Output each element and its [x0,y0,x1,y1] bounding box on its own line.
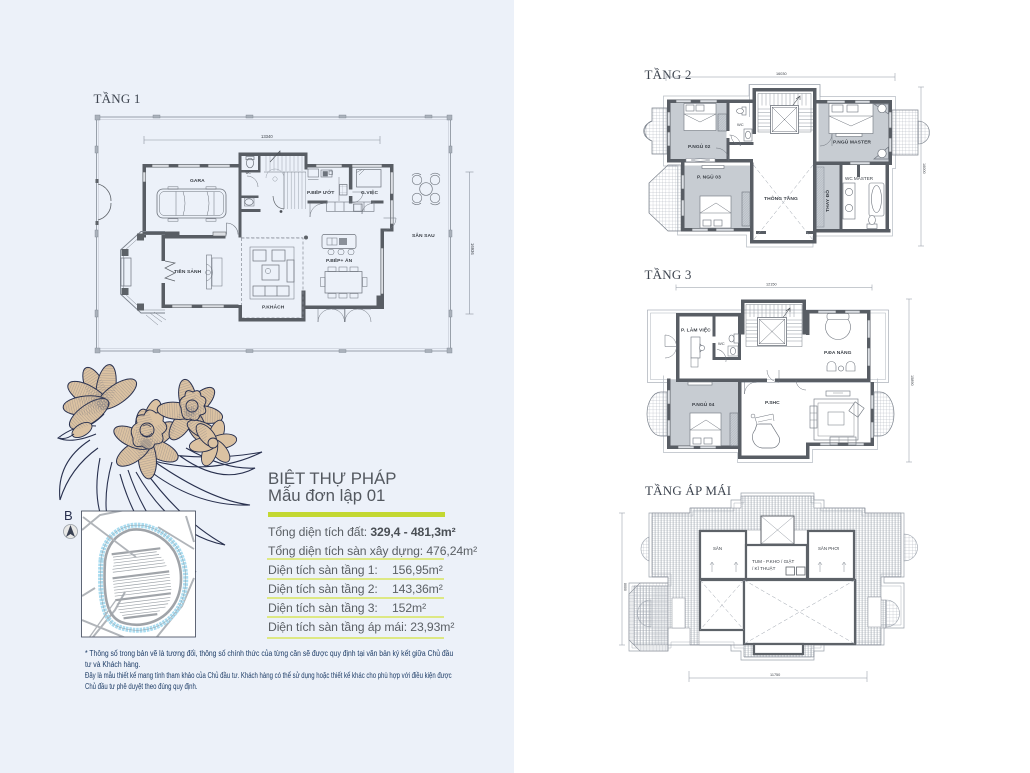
svg-text:WC: WC [718,341,725,346]
svg-text:15890: 15890 [910,375,914,386]
svg-text:TUM - P.KHO / GIẶT: TUM - P.KHO / GIẶT [752,558,794,564]
svg-text:13340: 13340 [261,134,273,139]
svg-text:G.VIỆC: G.VIỆC [361,188,379,196]
svg-text:GARA: GARA [190,178,205,184]
svg-text:P.NGỦ 02: P.NGỦ 02 [688,143,711,150]
svg-text:/ KĨ THUẬT: / KĨ THUẬT [752,565,776,571]
svg-text:12150: 12150 [766,283,777,287]
svg-text:16936: 16936 [470,243,474,255]
svg-text:B: B [64,508,73,523]
svg-text:WC: WC [737,122,744,127]
svg-text:16030: 16030 [776,72,787,76]
svg-text:THAY ĐỒ: THAY ĐỒ [824,190,831,212]
svg-text:WC: WC [246,171,252,175]
svg-text:SÂN SAU: SÂN SAU [412,232,435,239]
svg-text:P.NGỦ MASTER: P.NGỦ MASTER [833,139,871,146]
svg-text:SÂN: SÂN [713,546,722,551]
svg-text:P.BẾP+ ĂN: P.BẾP+ ĂN [326,257,353,264]
svg-text:P.KHÁCH: P.KHÁCH [262,304,285,311]
svg-text:P.BẾP ƯỚT: P.BẾP ƯỚT [307,188,334,196]
svg-text:8000: 8000 [623,583,627,591]
svg-text:THÔNG TẦNG: THÔNG TẦNG [764,194,798,202]
svg-text:P. NGỦ 03: P. NGỦ 03 [697,174,721,181]
svg-text:P.ĐA NĂNG: P.ĐA NĂNG [824,349,852,356]
svg-text:11750: 11750 [770,673,780,677]
svg-text:16000: 16000 [922,163,926,174]
svg-text:WC MASTER: WC MASTER [845,176,874,181]
svg-text:P. LÀM VIỆC: P. LÀM VIỆC [681,326,711,334]
svg-text:P.NGỦ 04: P.NGỦ 04 [692,401,715,408]
svg-text:SÂN PHƠI: SÂN PHƠI [818,546,839,551]
svg-text:P.SHC: P.SHC [765,400,780,406]
svg-text:TIỀN SẢNH: TIỀN SẢNH [174,268,202,275]
